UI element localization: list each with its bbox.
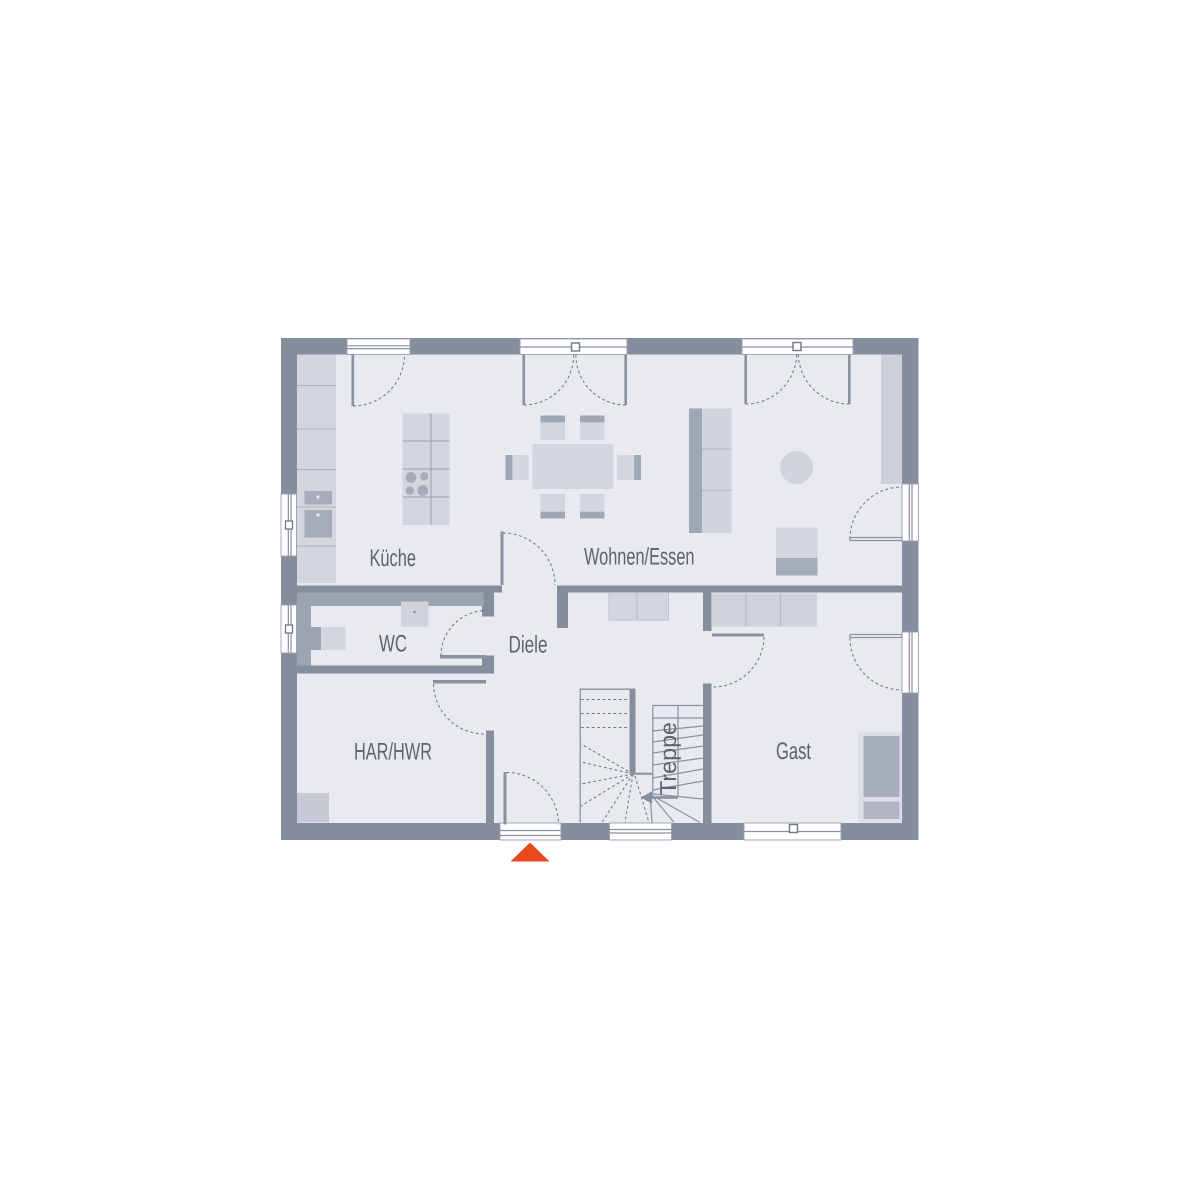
svg-text:Diele: Diele — [509, 632, 548, 659]
svg-text:WC: WC — [379, 631, 407, 658]
svg-text:Gast: Gast — [776, 738, 811, 765]
svg-text:HAR/HWR: HAR/HWR — [354, 739, 432, 766]
svg-text:Küche: Küche — [370, 545, 417, 572]
svg-text:Wohnen/Essen: Wohnen/Essen — [584, 544, 695, 571]
svg-text:Treppe: Treppe — [655, 722, 681, 795]
